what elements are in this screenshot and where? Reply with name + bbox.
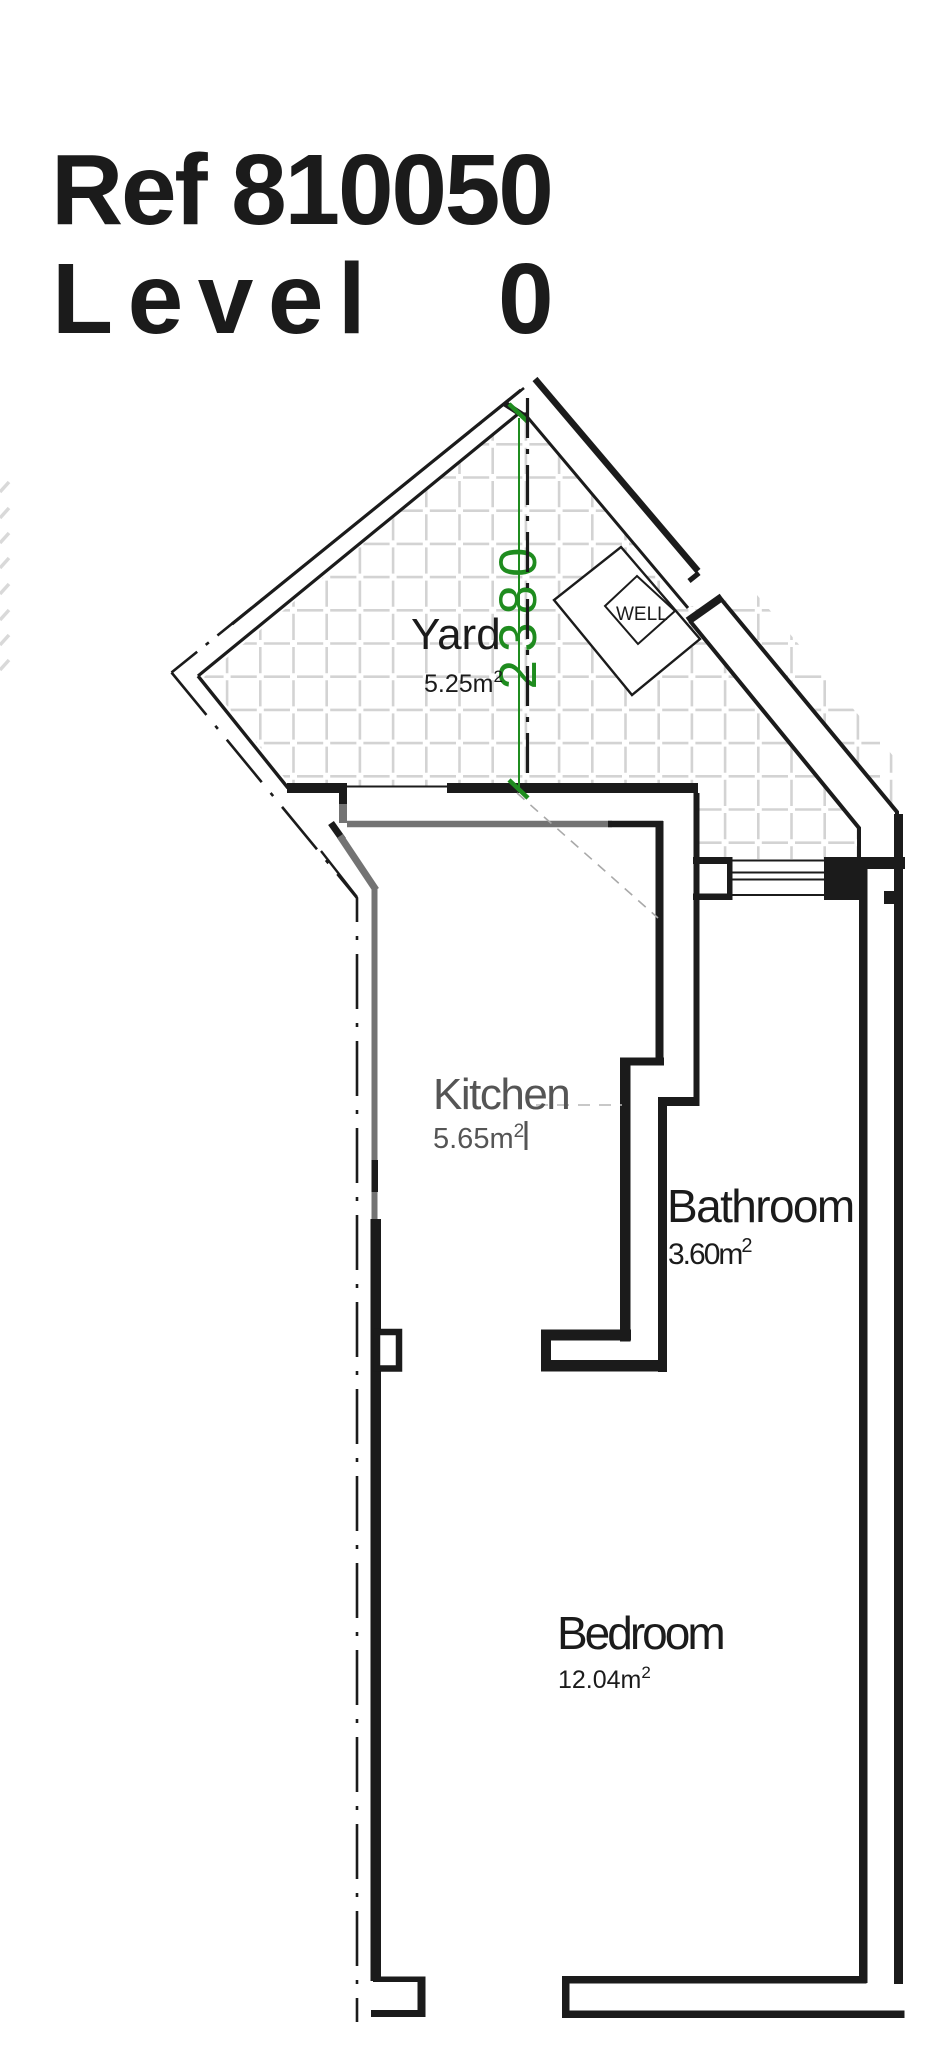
svg-text:5.65m2: 5.65m2 [433, 1121, 524, 1155]
svg-text:3.60m2: 3.60m2 [668, 1235, 752, 1271]
svg-text:Ref 810050: Ref 810050 [51, 134, 552, 246]
svg-text:Bedroom: Bedroom [557, 1607, 723, 1659]
svg-text:Kitchen: Kitchen [433, 1070, 569, 1119]
svg-text:12.04m2: 12.04m2 [558, 1663, 651, 1694]
svg-text:Level: Level [52, 243, 380, 355]
svg-text:WELL: WELL [616, 604, 668, 625]
svg-text:0: 0 [498, 243, 554, 355]
svg-text:5.25m2: 5.25m2 [424, 667, 503, 698]
svg-text:Yard: Yard [411, 610, 501, 659]
svg-text:Bathroom: Bathroom [667, 1180, 854, 1232]
